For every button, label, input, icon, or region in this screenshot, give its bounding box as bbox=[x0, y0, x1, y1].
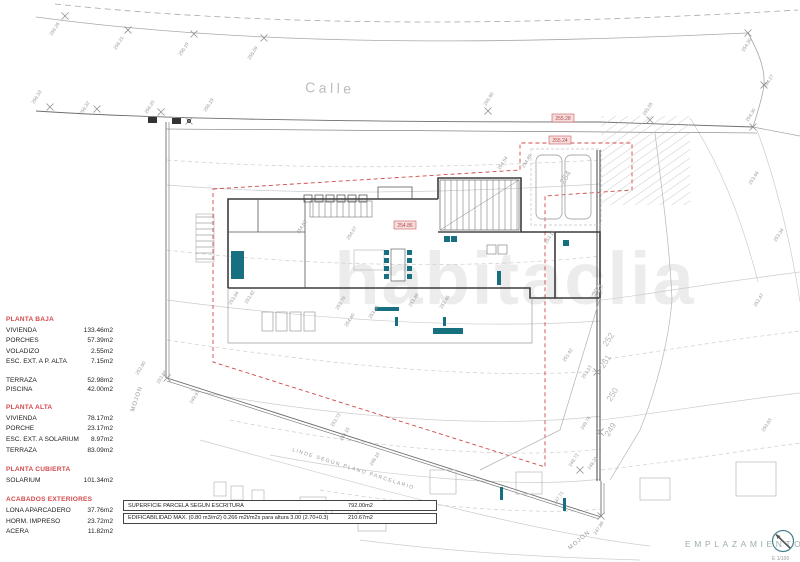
schedule-row-label: TERRAZA bbox=[6, 377, 37, 386]
svg-text:254.86: 254.86 bbox=[397, 223, 413, 229]
elevation-label: 255.05 bbox=[642, 101, 655, 117]
schedule-row: VIVIENDA133.46m2 bbox=[6, 326, 113, 337]
schedule-row-label: LONA APARCADERO bbox=[6, 506, 71, 517]
schedule-row-value: 8.97m2 bbox=[91, 435, 113, 446]
interior-stair bbox=[310, 201, 372, 217]
elevation-label: 256.19 bbox=[178, 41, 191, 57]
schedule-section-title: PLANTA BAJA bbox=[6, 315, 113, 326]
survey-cross bbox=[47, 104, 54, 111]
elevation-label: 256.09 bbox=[247, 45, 260, 61]
elevation-label: 253.08 bbox=[156, 369, 169, 385]
elevation-label: 252.47 bbox=[753, 292, 766, 308]
street-label: Calle bbox=[305, 79, 355, 97]
schedule-row-label: SOLARIUM bbox=[6, 476, 40, 487]
elevation-label: 253.44 bbox=[748, 170, 761, 186]
schedule-row-label: PISCINA bbox=[6, 386, 32, 395]
schedule-row-value: 52.98m2 bbox=[87, 377, 113, 386]
linde-label: LINDE SEGÚN PLANO PARCELARIO bbox=[291, 446, 415, 491]
schedule-section: PLANTA CUBIERTASOLARIUM101.34m2 bbox=[6, 465, 113, 486]
schedule-section: PLANTA ALTAVIVIENDA78.17m2PORCHE23.17m2E… bbox=[6, 403, 113, 456]
schedule-section-title: PLANTA CUBIERTA bbox=[6, 465, 113, 476]
elevation-label: 248.72 bbox=[568, 452, 581, 468]
schedule-row-label: HORM. IMPRESO bbox=[6, 517, 60, 528]
schedule-row: PORCHES57.39m2 bbox=[6, 336, 113, 347]
svg-text:255.28: 255.28 bbox=[555, 116, 571, 122]
elevation-label: 251.42 bbox=[562, 347, 575, 363]
table-row-label: SUPERFICIE PARCELA SEGÚN ESCRITURA bbox=[128, 503, 348, 509]
mojon-left-label: MOJON bbox=[130, 385, 144, 412]
kitchen-sink bbox=[444, 236, 450, 242]
survey-cross bbox=[94, 106, 101, 113]
table-row: SUPERFICIE PARCELA SEGÚN ESCRITURA 792.0… bbox=[123, 500, 437, 511]
schedule-row-value: 23.17m2 bbox=[87, 424, 113, 435]
survey-cross bbox=[191, 31, 198, 38]
elevation-label: 252.60 bbox=[135, 360, 148, 376]
elevation-label: 256.19 bbox=[203, 97, 216, 113]
contour-label: 250 bbox=[604, 386, 620, 404]
elevation-label: 256.20 bbox=[144, 99, 157, 115]
schedule-row-label: PORCHES bbox=[6, 336, 39, 347]
schedule-row: VIVIENDA78.17m2 bbox=[6, 414, 113, 425]
elevation-label: 253.73 bbox=[330, 412, 343, 428]
schedule-section: ACABADOS EXTERIORESLONA APARCADERO37.76m… bbox=[6, 495, 113, 537]
site-plan-drawing: habitaclia bbox=[0, 0, 800, 562]
elevation-label: 251.13 bbox=[581, 364, 594, 380]
survey-cross bbox=[261, 35, 268, 42]
elevation-label: 249.97 bbox=[189, 389, 202, 405]
table-row-label: EDIFICABILIDAD MÁX. (0.80 m3/m2) 0.266 m… bbox=[128, 515, 348, 521]
elevation-label: 254.54 bbox=[497, 155, 510, 171]
boundary-monuments bbox=[148, 117, 191, 124]
schedule-row-value: 78.17m2 bbox=[87, 414, 113, 425]
schedule-row-value: 101.34m2 bbox=[84, 476, 113, 487]
summary-table: SUPERFICIE PARCELA SEGÚN ESCRITURA 792.0… bbox=[123, 500, 437, 525]
elevation-label: 250.63 bbox=[761, 417, 774, 433]
elevation-label: 248.18 bbox=[369, 451, 382, 467]
elevation-label: 253.34 bbox=[773, 227, 786, 243]
elevation-label: 253.84 bbox=[228, 290, 241, 306]
schedule-row-value: 133.46m2 bbox=[84, 326, 113, 337]
elevation-label: 254.30 bbox=[741, 37, 754, 53]
exterior-steps-left bbox=[196, 214, 214, 262]
elevation-label: 256.33 bbox=[31, 89, 44, 105]
schedule-row-value: 23.72m2 bbox=[87, 517, 113, 528]
elevation-label: 254.62 bbox=[296, 219, 309, 235]
contour-label: 249 bbox=[602, 421, 618, 439]
pool-ladder bbox=[497, 271, 501, 285]
contour-label: 254 bbox=[557, 169, 573, 187]
elevation-label: 248.31 bbox=[587, 455, 600, 471]
elevation-label: 253.42 bbox=[244, 289, 257, 305]
red-level-label: 255.24 bbox=[549, 136, 571, 144]
schedule-section: TERRAZA52.98m2PISCINA42.00m2 bbox=[6, 377, 113, 394]
site-plan-page: habitaclia bbox=[0, 0, 800, 562]
schedule-row: ESC. EXT. A P. ALTA7.15m2 bbox=[6, 357, 113, 368]
elevation-label: 255.90 bbox=[483, 91, 496, 107]
schedule-row-value: 57.39m2 bbox=[87, 336, 113, 347]
schedule-row-label: VIVIENDA bbox=[6, 326, 37, 337]
elevation-label: 254.30 bbox=[745, 107, 758, 123]
elevation-label: 254.27 bbox=[763, 73, 776, 89]
survey-cross bbox=[485, 108, 492, 115]
red-level-label: 255.28 bbox=[552, 114, 574, 122]
schedule-section-title: ACABADOS EXTERIORES bbox=[6, 495, 113, 506]
schedule-row: SOLARIUM101.34m2 bbox=[6, 476, 113, 487]
contour-label: 252 bbox=[600, 331, 616, 349]
table-row-value: 210.67m2 bbox=[348, 515, 432, 521]
schedule-row: PORCHE23.17m2 bbox=[6, 424, 113, 435]
surface-schedule: PLANTA BAJAVIVIENDA133.46m2PORCHES57.39m… bbox=[6, 315, 113, 547]
schedule-row-label: TERRAZA bbox=[6, 446, 37, 457]
schedule-row-value: 42.00m2 bbox=[87, 386, 113, 395]
schedule-row-label: ESC. EXT. A P. ALTA bbox=[6, 357, 67, 368]
schedule-row: ESC. EXT. A SOLARIUM8.97m2 bbox=[6, 435, 113, 446]
schedule-row-label: VIVIENDA bbox=[6, 414, 37, 425]
schedule-row: TERRAZA83.09m2 bbox=[6, 446, 113, 457]
schedule-row-value: 2.55m2 bbox=[91, 347, 113, 358]
schedule-row-label: ACERA bbox=[6, 527, 29, 538]
table-row: EDIFICABILIDAD MÁX. (0.80 m3/m2) 0.266 m… bbox=[123, 513, 437, 524]
schedule-row: LONA APARCADERO37.76m2 bbox=[6, 506, 113, 517]
survey-cross bbox=[62, 13, 69, 20]
elevation-label: 256.21 bbox=[113, 35, 126, 51]
schedule-row: HORM. IMPRESO23.72m2 bbox=[6, 517, 113, 528]
schedule-section-title: PLANTA ALTA bbox=[6, 403, 113, 414]
schedule-row: PISCINA42.00m2 bbox=[6, 386, 113, 395]
schedule-section: PLANTA BAJAVIVIENDA133.46m2PORCHES57.39m… bbox=[6, 315, 113, 368]
survey-cross bbox=[577, 467, 584, 474]
schedule-row-label: PORCHE bbox=[6, 424, 34, 435]
scale-label: E 1/100 bbox=[772, 556, 789, 562]
bed bbox=[231, 251, 244, 279]
red-level-label: 254.86 bbox=[394, 221, 416, 229]
elevation-label: 254.49 bbox=[521, 153, 534, 169]
pool-edge bbox=[433, 328, 463, 334]
svg-text:255.24: 255.24 bbox=[552, 138, 568, 144]
title-block: EMPLAZAMIENTO E 1/100 bbox=[685, 531, 800, 562]
schedule-row-label: ESC. EXT. A SOLARIUM bbox=[6, 435, 79, 446]
elevation-label: 256.26 bbox=[49, 21, 62, 37]
schedule-row: ACERA11.82m2 bbox=[6, 527, 113, 538]
schedule-row-value: 11.82m2 bbox=[88, 527, 113, 538]
schedule-row-value: 7.15m2 bbox=[91, 357, 113, 368]
schedule-row-value: 83.09m2 bbox=[87, 446, 113, 457]
schedule-row: TERRAZA52.98m2 bbox=[6, 377, 113, 386]
schedule-row-label: VOLADIZO bbox=[6, 347, 39, 358]
elevation-label: 249.76 bbox=[580, 415, 593, 431]
survey-cross bbox=[158, 109, 165, 116]
mojon-right-label: MOJON bbox=[567, 530, 591, 552]
survey-cross bbox=[186, 118, 193, 125]
elevation-label: 247.88 bbox=[593, 520, 606, 536]
schedule-row-value: 37.76m2 bbox=[87, 506, 113, 517]
table-row-value: 792.00m2 bbox=[348, 503, 432, 509]
schedule-row: VOLADIZO2.55m2 bbox=[6, 347, 113, 358]
car-outline bbox=[565, 155, 591, 219]
